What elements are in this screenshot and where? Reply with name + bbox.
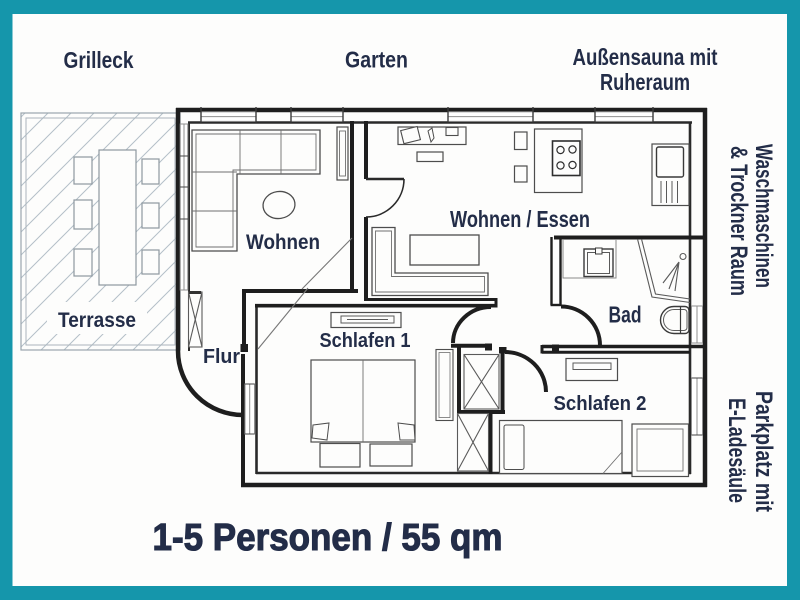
- svg-text:Wohnen: Wohnen: [246, 231, 320, 254]
- svg-text:E-Ladesäule: E-Ladesäule: [723, 398, 750, 503]
- svg-text:Waschmaschinen: Waschmaschinen: [750, 144, 777, 288]
- svg-text:Außensauna mit: Außensauna mit: [573, 44, 718, 70]
- svg-text:Schlafen 1: Schlafen 1: [320, 330, 411, 352]
- svg-text:Terrasse: Terrasse: [58, 308, 136, 332]
- svg-text:Schlafen 2: Schlafen 2: [554, 393, 647, 415]
- svg-text:Flur: Flur: [203, 346, 240, 368]
- svg-text:Garten: Garten: [345, 47, 408, 73]
- svg-text:Wohnen / Essen: Wohnen / Essen: [450, 206, 590, 232]
- svg-text:& Trockner Raum: & Trockner Raum: [725, 146, 752, 296]
- svg-text:Ruheraum: Ruheraum: [600, 69, 690, 95]
- svg-text:Parkplatz mit: Parkplatz mit: [750, 391, 777, 512]
- svg-text:1-5 Personen / 55 qm: 1-5 Personen / 55 qm: [153, 517, 503, 559]
- svg-text:Bad: Bad: [609, 302, 642, 328]
- svg-text:Grilleck: Grilleck: [64, 47, 134, 73]
